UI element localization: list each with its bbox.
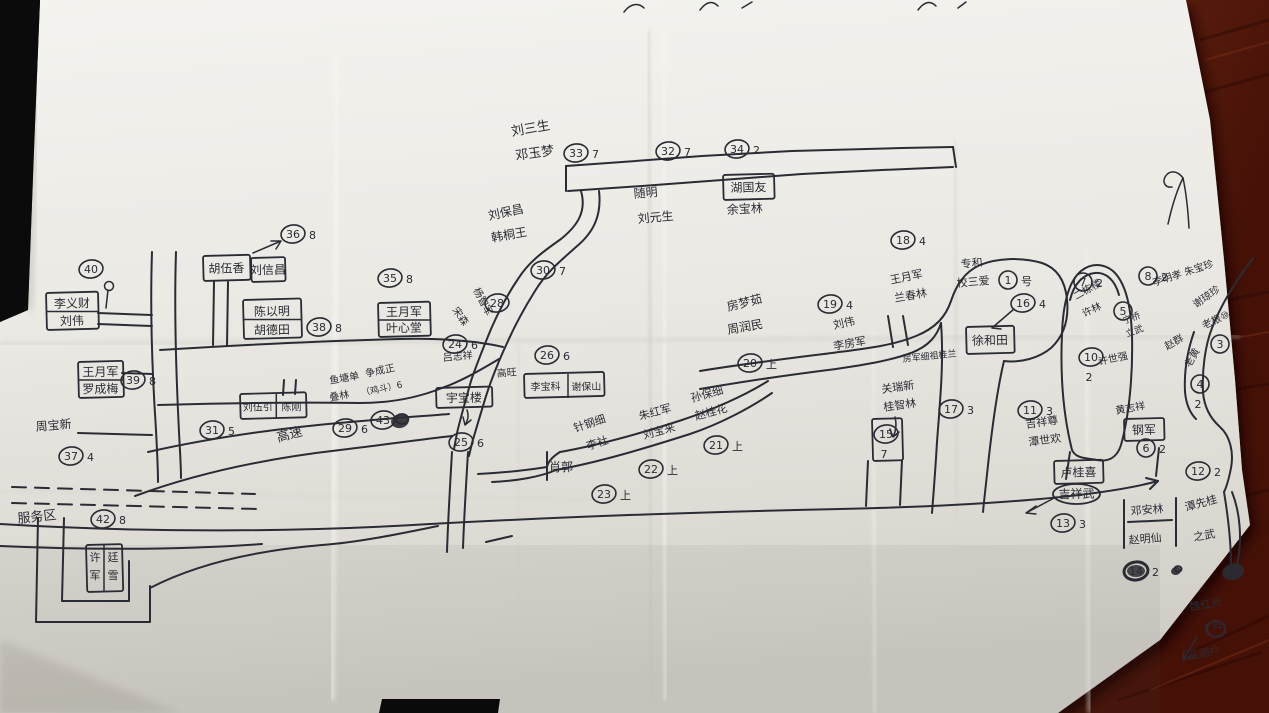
svg-text:廷: 廷 xyxy=(108,551,119,564)
svg-text:上: 上 xyxy=(766,358,777,371)
svg-text:叶心堂: 叶心堂 xyxy=(386,321,422,336)
map-label: 周宝新 xyxy=(35,416,72,434)
svg-text:1 户: 1 户 xyxy=(1203,621,1223,634)
svg-text:4: 4 xyxy=(87,451,94,464)
svg-text:13: 13 xyxy=(1056,517,1070,530)
svg-text:胡伍香: 胡伍香 xyxy=(208,261,244,276)
svg-text:8: 8 xyxy=(119,514,126,527)
svg-text:随明: 随明 xyxy=(633,184,658,201)
svg-text:37: 37 xyxy=(64,450,78,463)
svg-text:26: 26 xyxy=(540,349,554,362)
svg-text:6: 6 xyxy=(1143,442,1150,455)
svg-text:1: 1 xyxy=(1005,274,1012,287)
svg-text:38: 38 xyxy=(312,321,326,334)
map-label: 赵明仙 xyxy=(1128,530,1162,547)
svg-text:徐和田: 徐和田 xyxy=(972,332,1008,348)
svg-text:卢桂喜: 卢桂喜 xyxy=(1060,464,1096,480)
svg-text:21: 21 xyxy=(709,439,723,452)
svg-text:3: 3 xyxy=(1217,338,1224,351)
svg-text:谢保山: 谢保山 xyxy=(571,380,601,394)
svg-text:湖国友: 湖国友 xyxy=(730,179,766,195)
svg-text:2: 2 xyxy=(1159,443,1166,456)
svg-text:34: 34 xyxy=(730,143,744,156)
svg-text:李宝科: 李宝科 xyxy=(530,380,560,394)
svg-text:赵明仙: 赵明仙 xyxy=(1128,530,1162,547)
svg-text:7: 7 xyxy=(592,148,599,161)
svg-text:上: 上 xyxy=(620,489,631,502)
svg-text:宇宝楼: 宇宝楼 xyxy=(446,390,482,406)
svg-text:2: 2 xyxy=(753,144,760,157)
svg-text:6: 6 xyxy=(361,423,368,436)
svg-text:43: 43 xyxy=(376,414,390,427)
map-label: 随明 xyxy=(633,184,658,201)
svg-text:24: 24 xyxy=(448,338,462,351)
svg-text:32: 32 xyxy=(661,145,675,158)
svg-text:陈以明: 陈以明 xyxy=(254,303,290,319)
svg-text:号: 号 xyxy=(1021,275,1032,288)
svg-text:陈刚: 陈刚 xyxy=(281,400,301,413)
svg-text:19: 19 xyxy=(823,298,837,311)
svg-text:22: 22 xyxy=(644,463,658,476)
svg-text:4: 4 xyxy=(846,299,853,312)
svg-text:36: 36 xyxy=(286,228,300,241)
paper-sheet xyxy=(0,0,1250,713)
map-photo-canvas: 李义财刘伟王月军罗成梅胡伍香刘信昌陈以明胡德田王月军叶心堂刘伍引陈刚宇宝楼李宝科… xyxy=(0,0,1269,713)
svg-text:8: 8 xyxy=(309,229,316,242)
svg-text:8: 8 xyxy=(149,375,156,388)
map-label: 邓安林 xyxy=(1130,501,1164,518)
svg-text:11: 11 xyxy=(1023,404,1037,417)
map-label: 肖郭 xyxy=(549,460,573,474)
svg-text:3: 3 xyxy=(1079,518,1086,531)
svg-text:10: 10 xyxy=(1084,351,1098,364)
svg-text:雪: 雪 xyxy=(108,569,119,582)
svg-text:8: 8 xyxy=(1145,270,1152,283)
svg-text:校三爱: 校三爱 xyxy=(956,273,990,290)
svg-text:35: 35 xyxy=(383,272,397,285)
svg-text:7: 7 xyxy=(559,265,566,278)
name-box: 王月军罗成梅 xyxy=(78,361,124,398)
svg-text:7: 7 xyxy=(881,448,888,461)
svg-text:12: 12 xyxy=(1191,465,1205,478)
svg-text:吉祥武: 吉祥武 xyxy=(1058,487,1094,502)
svg-text:肖郭: 肖郭 xyxy=(549,460,573,474)
svg-text:30: 30 xyxy=(536,264,550,277)
svg-text:2: 2 xyxy=(1152,566,1159,579)
svg-text:上: 上 xyxy=(732,440,743,453)
svg-text:3: 3 xyxy=(967,404,974,417)
svg-text:15: 15 xyxy=(879,428,893,441)
svg-text:39: 39 xyxy=(126,374,140,387)
map-label: 1 户 xyxy=(1203,621,1223,634)
map-label: 余宝林 xyxy=(726,200,763,217)
svg-text:军: 军 xyxy=(90,569,101,582)
svg-text:4: 4 xyxy=(1197,378,1204,391)
name-box: 吉祥武 xyxy=(1053,484,1100,504)
svg-text:钢军: 钢军 xyxy=(1132,423,1156,437)
svg-text:周宝新: 周宝新 xyxy=(35,416,72,434)
photo-hand-drawn-map: 李义财刘伟王月军罗成梅胡伍香刘信昌陈以明胡德田王月军叶心堂刘伍引陈刚宇宝楼李宝科… xyxy=(0,0,1269,713)
svg-text:7: 7 xyxy=(684,146,691,159)
svg-text:2: 2 xyxy=(1086,371,1093,384)
svg-text:6: 6 xyxy=(477,437,484,450)
svg-text:16: 16 xyxy=(1016,297,1030,310)
svg-text:4: 4 xyxy=(919,235,926,248)
svg-text:刘伍引: 刘伍引 xyxy=(243,401,273,414)
svg-text:2: 2 xyxy=(1195,398,1202,411)
svg-text:4: 4 xyxy=(1039,298,1046,311)
svg-text:李义财: 李义财 xyxy=(54,295,90,311)
svg-text:王月军: 王月军 xyxy=(386,305,422,320)
svg-text:14: 14 xyxy=(1129,565,1143,578)
svg-text:余宝林: 余宝林 xyxy=(726,200,763,217)
svg-text:6: 6 xyxy=(563,350,570,363)
svg-text:29: 29 xyxy=(338,422,352,435)
svg-text:邓安林: 邓安林 xyxy=(1130,501,1164,518)
svg-text:18: 18 xyxy=(896,234,910,247)
svg-text:专和: 专和 xyxy=(960,255,983,271)
svg-text:31: 31 xyxy=(205,424,219,437)
svg-text:许: 许 xyxy=(90,551,101,564)
svg-text:刘信昌: 刘信昌 xyxy=(250,263,286,278)
map-label: 专和 xyxy=(960,255,983,271)
svg-text:上: 上 xyxy=(667,464,678,477)
svg-text:2: 2 xyxy=(1214,466,1221,479)
svg-text:40: 40 xyxy=(84,263,98,276)
svg-text:刘伟: 刘伟 xyxy=(60,314,84,328)
svg-text:胡德田: 胡德田 xyxy=(254,322,290,338)
svg-text:20: 20 xyxy=(743,357,757,370)
svg-text:8: 8 xyxy=(406,273,413,286)
svg-text:25: 25 xyxy=(454,436,468,449)
svg-text:23: 23 xyxy=(597,488,611,501)
svg-text:8: 8 xyxy=(335,322,342,335)
map-label: 校三爱 xyxy=(956,273,990,290)
svg-text:33: 33 xyxy=(569,147,583,160)
svg-text:42: 42 xyxy=(96,513,110,526)
svg-text:罗成梅: 罗成梅 xyxy=(82,381,118,397)
svg-text:17: 17 xyxy=(944,403,958,416)
svg-text:王月军: 王月军 xyxy=(82,365,118,380)
svg-text:5: 5 xyxy=(228,425,235,438)
